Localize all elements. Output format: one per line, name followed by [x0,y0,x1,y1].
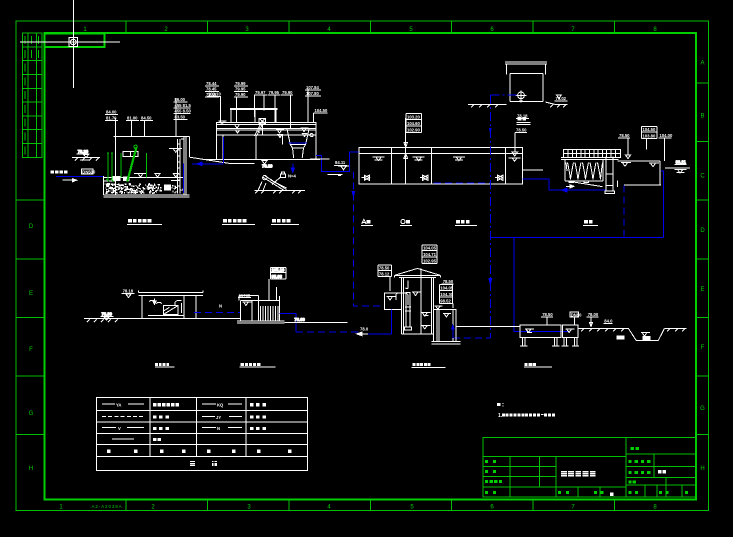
svg-text:86.00: 86.00 [175,97,186,102]
svg-text:105.10: 105.10 [272,268,285,273]
svg-text:DN500: DN500 [82,169,96,174]
svg-text:78.44: 78.44 [206,81,217,86]
svg-text:JY: JY [216,415,221,420]
svg-text:N=4: N=4 [288,174,296,179]
svg-text:103.20: 103.20 [407,115,420,120]
svg-text:84.50: 84.50 [141,116,152,121]
svg-text:84.11: 84.11 [335,160,346,165]
svg-text:78.45: 78.45 [206,87,217,92]
svg-text:78.18: 78.18 [206,92,217,97]
svg-text:D: D [700,228,705,234]
svg-text:79.99: 79.99 [235,81,246,86]
svg-text:107.80: 107.80 [306,91,319,96]
svg-text:104.71: 104.71 [423,252,436,257]
svg-text:G: G [29,411,34,417]
svg-text:102.95: 102.95 [423,258,436,263]
svg-text:104.00: 104.00 [660,133,673,138]
svg-text:78.00: 78.00 [294,317,305,322]
svg-text:78.0: 78.0 [360,327,369,332]
svg-text:79.95: 79.95 [269,90,280,95]
svg-text:DN80: DN80 [571,312,582,317]
svg-text:78.12: 78.12 [379,272,390,277]
svg-text:107.84: 107.84 [306,85,319,90]
svg-text:N: N [217,426,220,431]
svg-text:104.05: 104.05 [440,286,453,291]
svg-text:98.52: 98.52 [440,299,451,304]
svg-text:A: A [700,61,704,67]
svg-text:A2-A2039A: A2-A2039A [91,504,122,509]
svg-text:11740: 11740 [239,293,251,298]
svg-text:104.50: 104.50 [643,127,656,132]
svg-text:81.00: 81.00 [127,116,138,121]
svg-text:E: E [29,291,33,297]
svg-text:H: H [700,466,704,472]
svg-text:H: H [29,466,33,472]
svg-text:83.11: 83.11 [676,160,687,165]
svg-text:78.00: 78.00 [588,312,599,317]
svg-text:78.20: 78.20 [262,164,273,169]
svg-text:78.50: 78.50 [619,133,630,138]
svg-text:78.50: 78.50 [443,279,454,284]
svg-text:79.97: 79.97 [255,90,266,95]
svg-text:B: B [700,114,704,120]
svg-text:78.50: 78.50 [542,312,553,317]
svg-text:85.08: 85.08 [272,274,283,279]
svg-text:YA: YA [116,403,121,408]
svg-text:V: V [118,426,121,431]
svg-text:D: D [29,224,34,230]
svg-text:79.95: 79.95 [235,87,246,92]
svg-text:E: E [700,287,704,293]
svg-text:103.80: 103.80 [643,133,656,138]
svg-text:KQ: KQ [217,403,224,408]
svg-text:84.00: 84.00 [106,110,117,115]
svg-text:78.20: 78.20 [78,149,89,154]
svg-text:81.70: 81.70 [106,116,117,121]
svg-text:C: C [700,174,705,180]
svg-text:84.0: 84.0 [604,319,613,324]
svg-text:78.50: 78.50 [516,128,527,133]
svg-text:104.50: 104.50 [315,108,328,113]
svg-text:78.30: 78.30 [102,311,113,316]
svg-text:78.50: 78.50 [379,266,390,271]
svg-text:104.60: 104.60 [407,121,420,126]
svg-text:N: N [219,304,222,309]
svg-text:79.90: 79.90 [235,92,246,97]
svg-text:455 8.50: 455 8.50 [175,109,192,114]
svg-text:79.90: 79.90 [282,90,293,95]
svg-text:78.18: 78.18 [123,289,134,294]
svg-text:F: F [29,347,33,353]
svg-text:102.90: 102.90 [407,128,420,133]
svg-text:104.30: 104.30 [440,292,453,297]
svg-text:G: G [700,406,705,412]
svg-text:F: F [701,345,705,351]
svg-text:455 81.5: 455 81.5 [175,103,192,108]
svg-text:104.05: 104.05 [423,246,436,251]
svg-text:83.50: 83.50 [175,115,186,120]
